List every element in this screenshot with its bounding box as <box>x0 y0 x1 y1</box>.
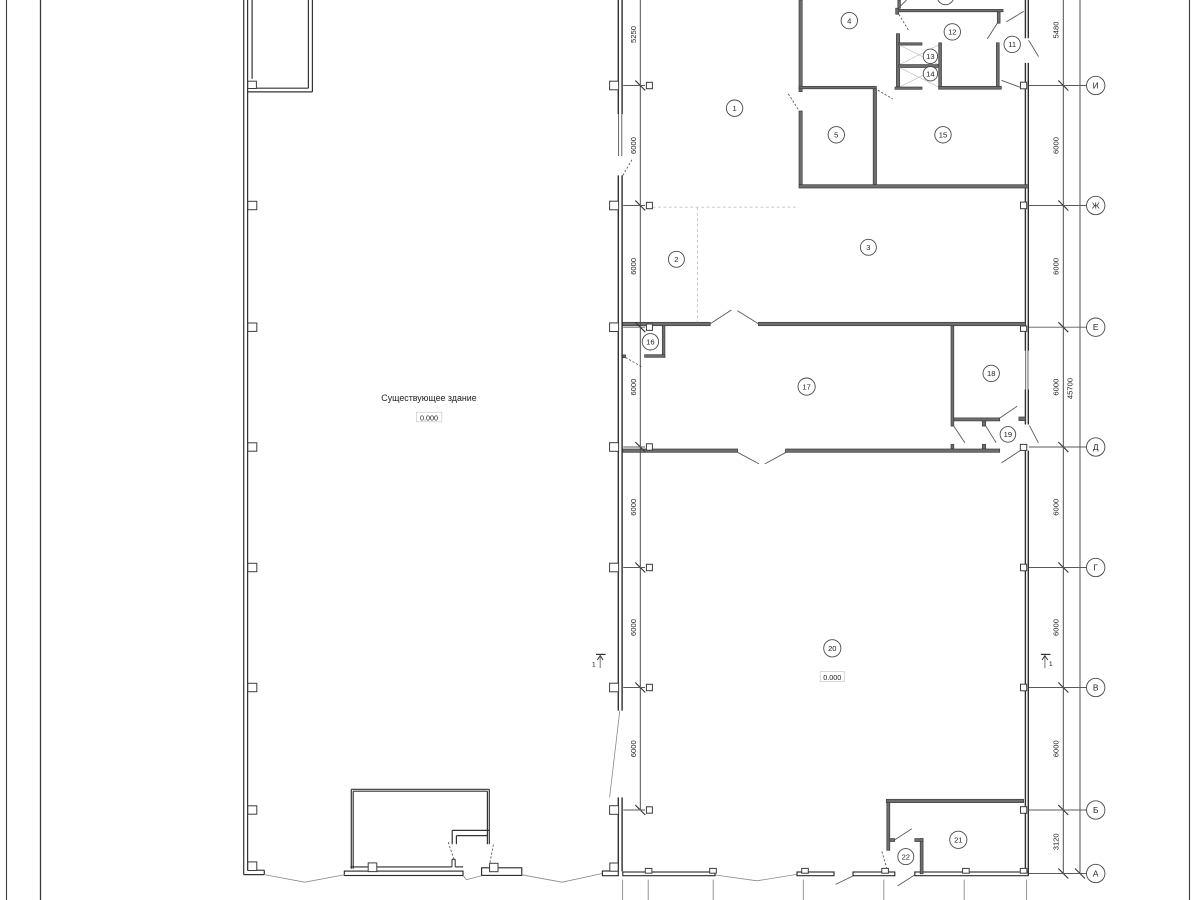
svg-text:15: 15 <box>939 131 947 140</box>
svg-text:Б: Б <box>1093 805 1099 815</box>
svg-text:6000: 6000 <box>1052 740 1061 757</box>
svg-text:0.000: 0.000 <box>823 673 841 682</box>
svg-text:6000: 6000 <box>629 740 638 757</box>
svg-text:16: 16 <box>646 338 654 347</box>
svg-text:20: 20 <box>828 644 836 653</box>
svg-text:Г: Г <box>1093 563 1098 573</box>
svg-text:22: 22 <box>902 852 910 861</box>
svg-text:3120: 3120 <box>1052 833 1061 850</box>
svg-text:45700: 45700 <box>1066 378 1075 399</box>
svg-text:12: 12 <box>948 28 956 37</box>
svg-text:1: 1 <box>592 662 596 669</box>
svg-text:А: А <box>1093 869 1099 879</box>
svg-text:6000: 6000 <box>1052 258 1061 275</box>
svg-text:6000: 6000 <box>1052 619 1061 636</box>
svg-text:6000: 6000 <box>629 137 638 154</box>
svg-text:19: 19 <box>1004 430 1012 439</box>
svg-text:Д: Д <box>1093 442 1099 452</box>
svg-text:Ж: Ж <box>1092 201 1100 211</box>
svg-text:6000: 6000 <box>629 619 638 636</box>
svg-text:6000: 6000 <box>1052 137 1061 154</box>
svg-text:5250: 5250 <box>629 26 638 43</box>
svg-text:0.000: 0.000 <box>420 414 438 423</box>
svg-text:5: 5 <box>834 131 838 140</box>
svg-text:6000: 6000 <box>629 499 638 516</box>
svg-text:6000: 6000 <box>629 379 638 396</box>
svg-text:Существующее здание: Существующее здание <box>381 393 476 403</box>
svg-text:13: 13 <box>926 52 934 61</box>
svg-text:6000: 6000 <box>629 258 638 275</box>
svg-text:18: 18 <box>987 369 995 378</box>
svg-text:Е: Е <box>1093 322 1099 332</box>
svg-text:1: 1 <box>1049 661 1053 668</box>
svg-text:И: И <box>1093 81 1099 91</box>
svg-text:6000: 6000 <box>1052 499 1061 516</box>
svg-text:11: 11 <box>1008 40 1016 49</box>
svg-text:В: В <box>1093 683 1099 693</box>
svg-text:2: 2 <box>674 255 678 264</box>
svg-text:6000: 6000 <box>1052 379 1061 396</box>
svg-text:3: 3 <box>866 243 870 252</box>
svg-text:21: 21 <box>954 836 962 845</box>
svg-text:14: 14 <box>926 69 934 78</box>
svg-text:17: 17 <box>802 382 810 391</box>
svg-text:1: 1 <box>732 104 736 113</box>
svg-text:4: 4 <box>847 16 851 25</box>
svg-text:5480: 5480 <box>1052 22 1061 39</box>
svg-text:10: 10 <box>941 0 949 1</box>
